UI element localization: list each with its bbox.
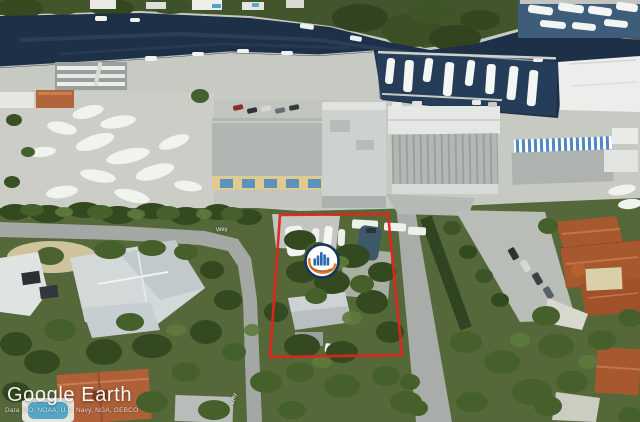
awning-building bbox=[511, 136, 613, 184]
google-earth-canvas[interactable]: Way Way Google Earth Data SIO, NOAA, U.S… bbox=[0, 0, 640, 422]
house-terracotta-se bbox=[595, 347, 640, 396]
aerial-imagery[interactable] bbox=[0, 0, 640, 422]
big-warehouse bbox=[388, 106, 500, 194]
tall-gray-building bbox=[322, 102, 386, 208]
property-logo-marker[interactable] bbox=[306, 245, 339, 278]
storage-building-tan bbox=[212, 118, 326, 190]
